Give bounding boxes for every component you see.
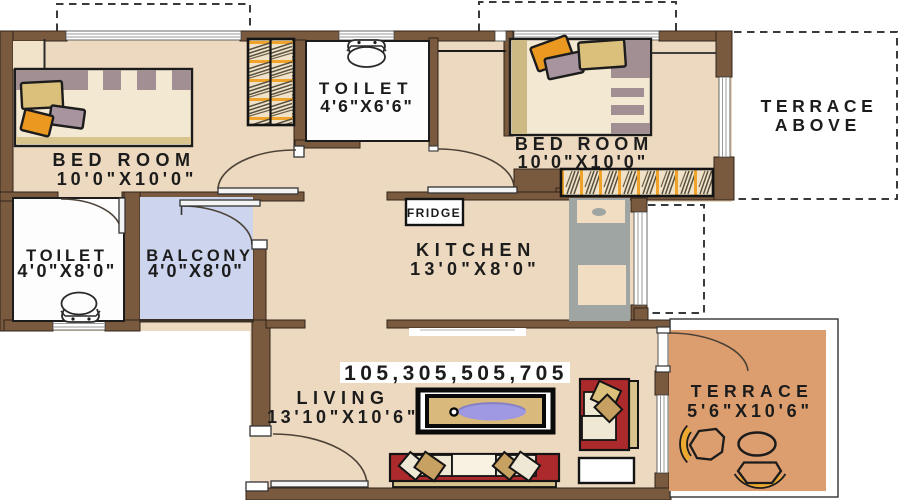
svg-text:FRIDGE: FRIDGE [407,206,461,220]
svg-text:4'0"X8'0": 4'0"X8'0" [17,261,116,281]
svg-text:TERRACE: TERRACE [761,96,878,116]
svg-text:10'0"X10'0": 10'0"X10'0" [57,169,198,189]
svg-text:5'6"X10'6": 5'6"X10'6" [687,401,813,421]
svg-text:4'6"X6'6": 4'6"X6'6" [320,96,414,116]
svg-text:LIVING: LIVING [296,388,389,408]
svg-text:ABOVE: ABOVE [775,115,861,135]
svg-text:105,305,505,705: 105,305,505,705 [344,362,568,385]
svg-text:BED ROOM: BED ROOM [515,134,653,154]
svg-text:13'0"X8'0": 13'0"X8'0" [410,259,540,279]
svg-text:4'0"X8'0": 4'0"X8'0" [148,261,244,281]
svg-text:TERRACE: TERRACE [691,381,813,401]
svg-text:13'10"X10'6": 13'10"X10'6" [267,407,419,427]
svg-text:KITCHEN: KITCHEN [416,240,536,260]
svg-text:BED ROOM: BED ROOM [53,150,196,170]
